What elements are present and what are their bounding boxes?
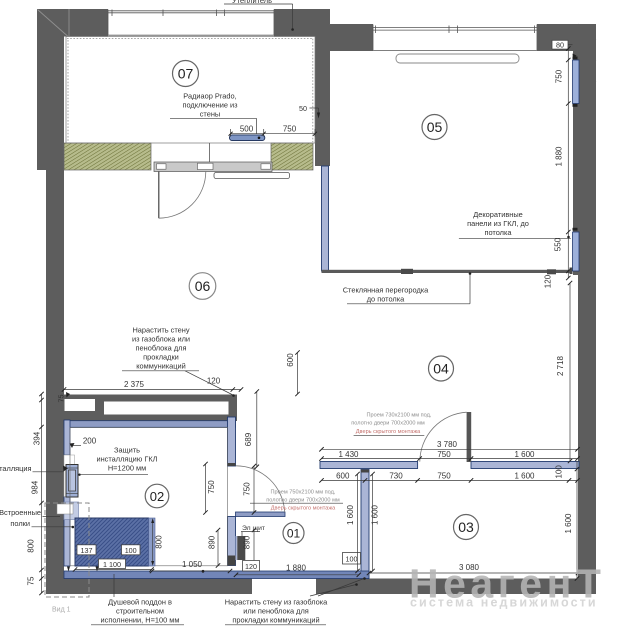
- svg-text:2 718: 2 718: [556, 355, 565, 376]
- svg-text:200: 200: [83, 437, 97, 446]
- svg-text:1 600: 1 600: [346, 504, 355, 525]
- svg-text:2 375: 2 375: [124, 380, 145, 389]
- svg-text:3 780: 3 780: [437, 440, 458, 449]
- svg-text:06: 06: [195, 278, 211, 294]
- svg-text:730: 730: [389, 471, 403, 480]
- svg-text:система недвижимости: система недвижимости: [410, 595, 598, 609]
- svg-text:пеноблока для: пеноблока для: [136, 344, 187, 353]
- svg-text:прокладки: прокладки: [143, 353, 179, 362]
- svg-text:100: 100: [555, 465, 564, 479]
- svg-text:Проем 750х2100 мм под,: Проем 750х2100 мм под,: [271, 490, 336, 496]
- svg-text:строительном: строительном: [116, 607, 164, 616]
- svg-text:до потолка: до потолка: [367, 295, 405, 304]
- svg-text:прокладки коммуникаций: прокладки коммуникаций: [232, 616, 319, 625]
- svg-text:полки: полки: [10, 519, 30, 528]
- svg-text:Н=1200 мм: Н=1200 мм: [108, 464, 146, 473]
- svg-text:Стеклянная перегородка: Стеклянная перегородка: [343, 286, 429, 295]
- svg-text:Вид 1: Вид 1: [52, 607, 71, 614]
- svg-text:Радиаор Prado,: Радиаор Prado,: [183, 92, 236, 101]
- svg-text:80: 80: [556, 40, 564, 49]
- svg-text:полотно двери 700х2000 мм: полотно двери 700х2000 мм: [351, 421, 425, 427]
- svg-text:04: 04: [433, 361, 449, 377]
- svg-text:600: 600: [286, 353, 295, 367]
- svg-text:Инсталляция: Инсталляция: [0, 464, 32, 473]
- svg-text:550: 550: [554, 237, 563, 251]
- svg-text:1 050: 1 050: [182, 560, 203, 569]
- svg-text:Дверь скрытого монтажа: Дверь скрытого монтажа: [271, 506, 336, 512]
- svg-text:1 600: 1 600: [564, 513, 573, 534]
- svg-text:800: 800: [155, 535, 164, 549]
- svg-text:1 880: 1 880: [286, 563, 307, 572]
- svg-text:1 600: 1 600: [514, 471, 535, 480]
- svg-text:600: 600: [336, 471, 350, 480]
- svg-text:Встроенные: Встроенные: [0, 508, 41, 517]
- svg-text:1 880: 1 880: [555, 146, 564, 167]
- svg-text:Декоративные: Декоративные: [473, 210, 523, 219]
- svg-text:120: 120: [544, 274, 553, 288]
- svg-text:750: 750: [283, 125, 297, 134]
- svg-text:Нарастить стену из газоблока: Нарастить стену из газоблока: [225, 598, 328, 607]
- svg-text:750: 750: [207, 480, 216, 494]
- svg-text:120: 120: [207, 377, 221, 386]
- svg-text:панели из ГКЛ, до: панели из ГКЛ, до: [467, 219, 529, 228]
- svg-text:из газоблока или: из газоблока или: [132, 335, 190, 344]
- svg-text:689: 689: [244, 432, 253, 446]
- svg-text:750: 750: [243, 482, 252, 496]
- svg-text:100: 100: [125, 546, 137, 555]
- svg-text:коммуникаций: коммуникаций: [136, 362, 186, 371]
- svg-text:137: 137: [81, 546, 93, 555]
- svg-text:750: 750: [555, 69, 564, 83]
- svg-text:394: 394: [33, 431, 42, 445]
- svg-text:1 100: 1 100: [103, 560, 121, 569]
- svg-text:800: 800: [27, 539, 36, 553]
- svg-text:02: 02: [150, 489, 164, 504]
- svg-text:1 430: 1 430: [338, 450, 359, 459]
- svg-text:750: 750: [437, 450, 451, 459]
- svg-text:Эл щит: Эл щит: [242, 525, 265, 532]
- svg-text:07: 07: [178, 66, 194, 82]
- svg-text:потолка: потолка: [484, 228, 512, 237]
- svg-text:01: 01: [287, 527, 301, 541]
- svg-text:1 600: 1 600: [514, 450, 535, 459]
- svg-text:инсталляцию ГКЛ: инсталляцию ГКЛ: [96, 455, 157, 464]
- svg-text:05: 05: [427, 119, 443, 135]
- svg-text:полотно двери 700х2000 мм: полотно двери 700х2000 мм: [266, 498, 340, 504]
- svg-text:75: 75: [57, 395, 66, 403]
- svg-text:Дверь скрытого монтажа: Дверь скрытого монтажа: [356, 429, 421, 435]
- svg-text:или пеноблока для: или пеноблока для: [243, 607, 309, 616]
- svg-text:890: 890: [243, 535, 252, 549]
- svg-text:Проем 730х2100 мм под,: Проем 730х2100 мм под,: [367, 413, 432, 419]
- svg-text:984: 984: [31, 480, 40, 494]
- svg-text:03: 03: [458, 519, 474, 535]
- svg-text:подключение из: подключение из: [182, 101, 238, 110]
- svg-text:750: 750: [437, 471, 451, 480]
- svg-text:120: 120: [245, 562, 257, 571]
- svg-text:исполнении, Н=100 мм: исполнении, Н=100 мм: [101, 616, 180, 625]
- svg-text:Нарастить стену: Нарастить стену: [132, 326, 189, 335]
- svg-text:890: 890: [208, 535, 217, 549]
- svg-text:1 600: 1 600: [371, 504, 380, 525]
- svg-text:стены: стены: [200, 110, 221, 119]
- svg-text:Душевой поддон в: Душевой поддон в: [108, 598, 172, 607]
- svg-text:50: 50: [299, 104, 307, 113]
- svg-text:75: 75: [27, 576, 36, 585]
- svg-text:Защить: Защить: [114, 446, 140, 455]
- svg-text:500: 500: [240, 125, 254, 134]
